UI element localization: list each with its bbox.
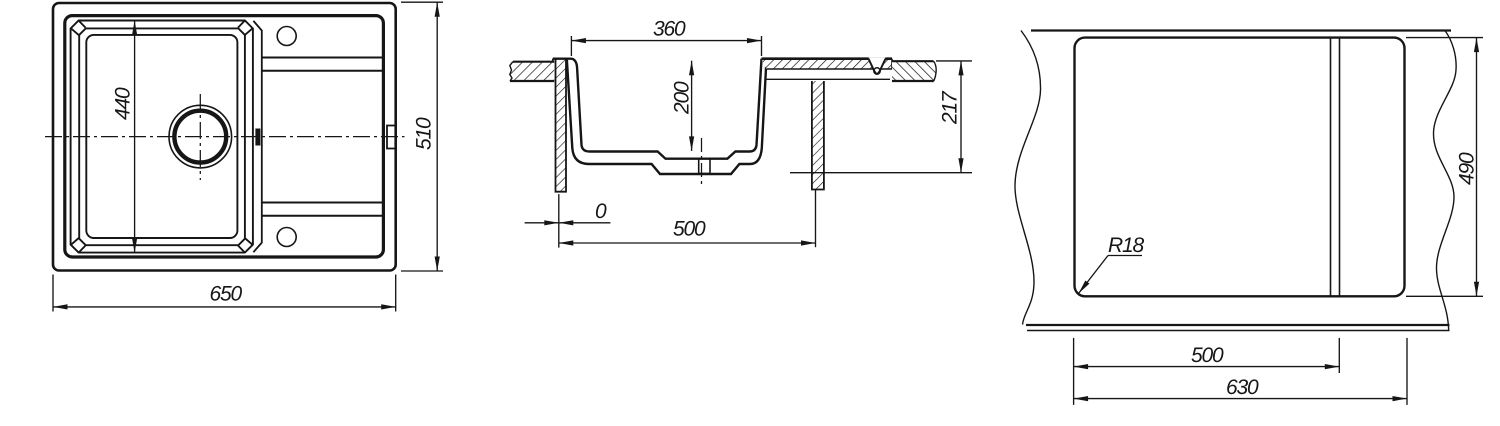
svg-text:R18: R18 xyxy=(1108,234,1144,257)
svg-text:630: 630 xyxy=(1226,376,1259,399)
svg-text:217: 217 xyxy=(939,90,962,125)
svg-text:510: 510 xyxy=(413,117,436,150)
svg-text:440: 440 xyxy=(112,87,135,120)
svg-text:0: 0 xyxy=(595,200,607,223)
svg-text:200: 200 xyxy=(671,81,694,115)
svg-text:650: 650 xyxy=(210,283,243,306)
svg-text:500: 500 xyxy=(1191,344,1224,367)
svg-text:500: 500 xyxy=(673,218,706,241)
svg-text:360: 360 xyxy=(653,18,686,41)
svg-text:490: 490 xyxy=(1456,152,1479,185)
